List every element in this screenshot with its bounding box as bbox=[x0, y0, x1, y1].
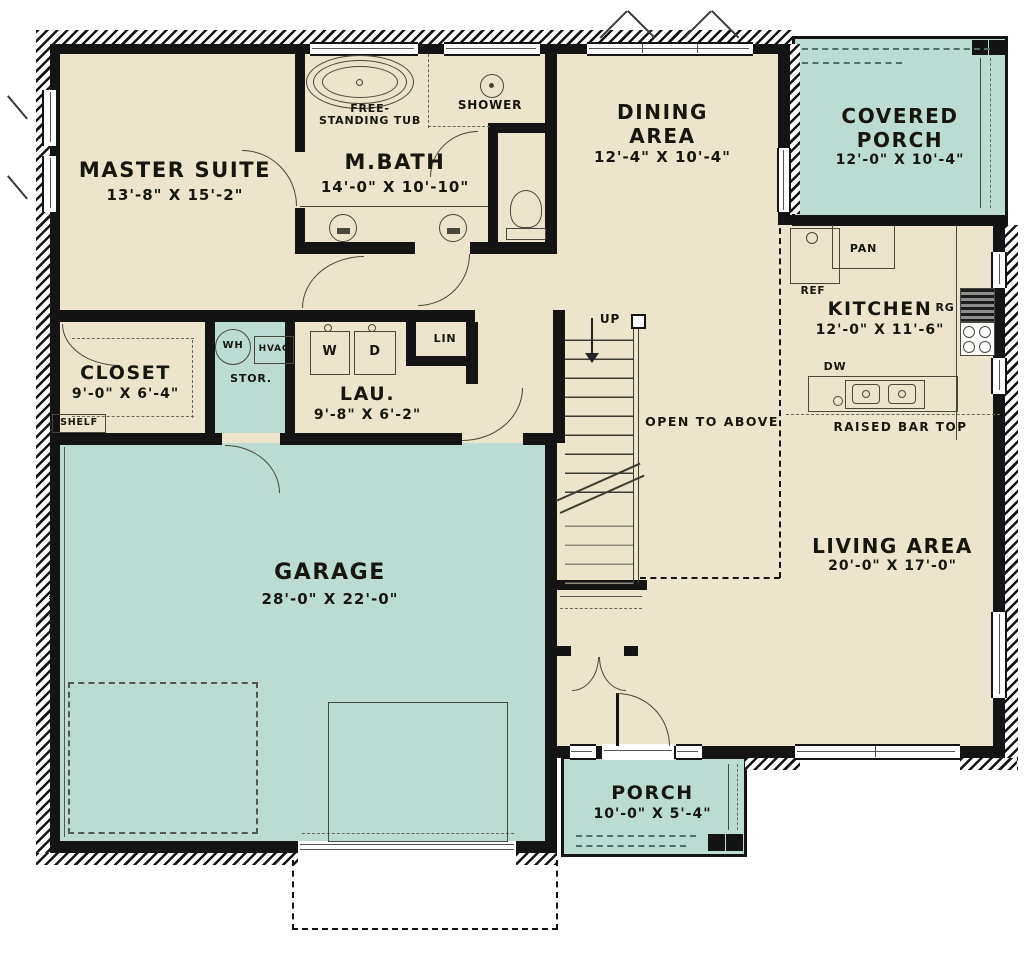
porch-roof-line bbox=[802, 48, 990, 50]
closet-rod bbox=[72, 338, 194, 339]
label-covered-porch-line2: PORCH bbox=[800, 128, 1000, 152]
label-pan: PAN bbox=[832, 242, 895, 255]
label-living-area: LIVING AREA bbox=[795, 534, 990, 558]
dim-extension-line bbox=[64, 447, 65, 837]
wall-closet-right bbox=[205, 322, 215, 433]
label-closet: CLOSET bbox=[48, 362, 203, 384]
hatch-garage-bottom bbox=[36, 853, 298, 865]
garage-door-opening bbox=[298, 841, 516, 853]
label-ref: REF bbox=[790, 285, 836, 297]
toilet-bowl bbox=[510, 190, 542, 228]
open-above-boundary bbox=[779, 228, 781, 578]
wall-bath-bottom bbox=[470, 242, 555, 254]
label-master-suite: MASTER SUITE bbox=[60, 158, 290, 182]
window-master-left bbox=[42, 90, 58, 146]
wall-bath-right bbox=[545, 44, 557, 254]
window-living-bottom bbox=[676, 744, 702, 760]
porch-column bbox=[989, 40, 1005, 55]
dims-dining: 12'-4" X 10'-4" bbox=[580, 148, 745, 166]
coat-closet-rod bbox=[560, 608, 642, 609]
burner bbox=[979, 326, 991, 338]
sink-drain bbox=[862, 390, 870, 398]
porch-column bbox=[726, 834, 743, 851]
window-dining-top bbox=[587, 42, 753, 56]
label-dining-line1: DINING bbox=[580, 100, 745, 124]
coat-closet-shelf bbox=[560, 596, 642, 597]
ref-handle bbox=[806, 232, 818, 244]
garage-door-line bbox=[300, 844, 514, 845]
window-kitchen-right bbox=[991, 252, 1007, 288]
wall-garage-top bbox=[280, 433, 462, 445]
window-living-right bbox=[991, 612, 1007, 698]
wall-stairs-left bbox=[553, 310, 565, 443]
driveway-outline bbox=[292, 860, 294, 930]
label-hvac: HVAC bbox=[254, 344, 294, 354]
open-above-boundary bbox=[640, 577, 780, 579]
porch-column bbox=[708, 834, 725, 851]
label-stor: STOR. bbox=[226, 372, 276, 385]
up-arrow-head bbox=[585, 353, 599, 363]
label-laundry: LAU. bbox=[285, 383, 450, 405]
label-shower: SHOWER bbox=[452, 98, 528, 112]
window-living-bottom-wide bbox=[795, 744, 960, 760]
driveway-outline bbox=[292, 928, 558, 930]
wall-entry-closet-stub bbox=[557, 646, 571, 656]
label-washer: W bbox=[310, 344, 350, 359]
front-door-sill bbox=[604, 750, 672, 751]
driveway-outline bbox=[556, 860, 558, 930]
wall-entry-closet-stub bbox=[624, 646, 638, 656]
vanity-counter bbox=[300, 206, 488, 207]
stairs-treads-dashed bbox=[565, 508, 633, 584]
wall-garage-top bbox=[523, 433, 557, 445]
label-free-tub-2: STANDING TUB bbox=[305, 114, 435, 127]
wall-laundry-right bbox=[466, 322, 478, 384]
dims-kitchen: 12'-0" X 11'-6" bbox=[800, 322, 960, 338]
wall-garage-right bbox=[545, 443, 557, 853]
shower-glass bbox=[428, 126, 490, 127]
label-shelf: SHELF bbox=[52, 417, 106, 428]
burner bbox=[963, 341, 975, 353]
dims-master-suite: 13'-8" X 15'-2" bbox=[60, 186, 290, 204]
vanity-sink-base bbox=[337, 228, 350, 234]
label-lin: LIN bbox=[424, 332, 466, 345]
raised-bar-line bbox=[786, 414, 1000, 415]
label-dryer: D bbox=[354, 344, 396, 359]
stairs-stringer bbox=[633, 322, 639, 584]
label-wh: WH bbox=[215, 340, 251, 351]
stairs-treads bbox=[565, 322, 633, 502]
garage-bay-dashed bbox=[68, 682, 258, 834]
floor-plan: MASTER SUITE 13'-8" X 15'-2" M.BATH 14'-… bbox=[0, 0, 1024, 969]
tub-drain bbox=[356, 79, 363, 86]
up-arrow-line bbox=[591, 318, 593, 354]
label-porch: PORCH bbox=[575, 782, 730, 804]
washer-hookup bbox=[324, 324, 332, 332]
wall-garage-top bbox=[50, 433, 222, 445]
window-living-bottom bbox=[570, 744, 596, 760]
window-chevron bbox=[7, 95, 28, 119]
window-shower-top bbox=[444, 42, 540, 56]
window-kitchen-right bbox=[991, 358, 1007, 394]
window-bath-top bbox=[310, 42, 418, 56]
garage-door-line bbox=[300, 849, 514, 850]
hatch-garage-bottom bbox=[516, 853, 557, 865]
island-faucet bbox=[833, 396, 843, 406]
label-dw: DW bbox=[818, 360, 852, 373]
porch-floor-line bbox=[576, 845, 686, 847]
porch-roof-line bbox=[802, 62, 902, 64]
dims-living-area: 20'-0" X 17'-0" bbox=[795, 558, 990, 574]
label-garage: GARAGE bbox=[230, 560, 430, 585]
dims-porch: 10'-0" X 5'-4" bbox=[575, 806, 730, 822]
wall-bath-bottom bbox=[295, 242, 415, 254]
dims-garage: 28'-0" X 22'-0" bbox=[230, 590, 430, 608]
label-open-to-above: OPEN TO ABOVE bbox=[642, 414, 782, 429]
dims-laundry: 9'-8" X 6'-2" bbox=[285, 407, 450, 423]
dims-covered-porch: 12'-0" X 10'-4" bbox=[800, 152, 1000, 168]
dims-mbath: 14'-0" X 10'-10" bbox=[300, 178, 490, 196]
stairs-newel bbox=[631, 314, 646, 329]
porch-floor-line bbox=[576, 835, 696, 837]
sink-drain bbox=[898, 390, 906, 398]
label-dining-line2: AREA bbox=[580, 124, 745, 148]
label-mbath: M.BATH bbox=[300, 150, 490, 174]
garage-bay bbox=[328, 702, 508, 842]
wall-garage-bottom bbox=[50, 841, 298, 853]
burner bbox=[979, 341, 991, 353]
label-range: RG bbox=[932, 301, 958, 314]
label-garage-depth: 20'-0" bbox=[48, 584, 60, 644]
door-dining-porch bbox=[777, 148, 791, 212]
label-covered-porch-line1: COVERED bbox=[800, 104, 1000, 128]
burner bbox=[963, 326, 975, 338]
shower-head-dot bbox=[489, 83, 494, 88]
label-up: UP bbox=[596, 312, 624, 326]
wall-master-bath bbox=[295, 44, 305, 152]
wall-master-bottom bbox=[50, 310, 475, 322]
front-door-opening bbox=[602, 744, 674, 760]
wall-kitchen-top bbox=[790, 215, 1005, 225]
range-back bbox=[960, 288, 995, 322]
hatch-living-bottom bbox=[745, 758, 800, 770]
hatch-living-bottom bbox=[960, 758, 1017, 770]
label-raised-bar: RAISED BAR TOP bbox=[798, 420, 1003, 434]
dims-closet: 9'-0" X 6'-4" bbox=[48, 386, 203, 402]
window-chevron bbox=[7, 175, 28, 199]
toilet-tank bbox=[506, 228, 546, 240]
porch-roof-line bbox=[737, 764, 738, 830]
dryer-hookup bbox=[368, 324, 376, 332]
vanity-sink-base bbox=[447, 228, 460, 234]
window-master-left bbox=[42, 156, 58, 212]
